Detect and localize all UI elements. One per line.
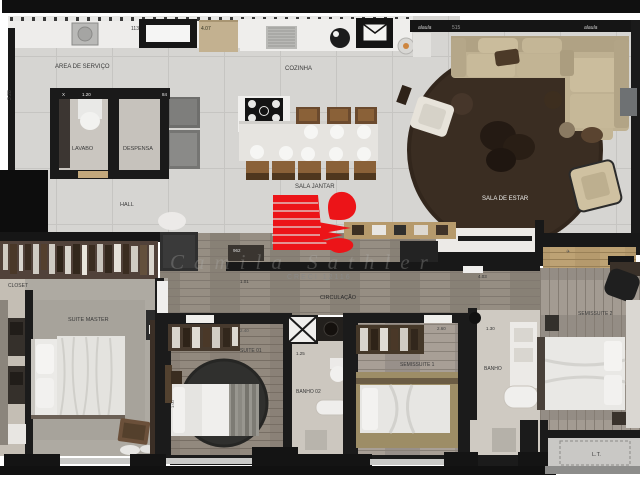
- svg-text:4.07: 4.07: [201, 26, 211, 32]
- svg-text:DESPENSA: DESPENSA: [123, 146, 153, 152]
- svg-text:515: 515: [452, 25, 461, 31]
- svg-text:L.T.: L.T.: [592, 452, 601, 458]
- svg-text:1.25: 1.25: [296, 351, 305, 356]
- svg-text:✈: ✈: [566, 249, 570, 255]
- svg-text:1.01: 1.01: [240, 279, 249, 284]
- svg-text:1.30: 1.30: [486, 326, 495, 331]
- svg-text:BANHO: BANHO: [484, 366, 502, 372]
- svg-text:COZINHA: COZINHA: [285, 66, 312, 72]
- svg-text:2.60: 2.60: [437, 326, 446, 331]
- svg-text:2.40: 2.40: [240, 328, 249, 333]
- svg-text:CIRCULAÇÃO: CIRCULAÇÃO: [320, 294, 357, 301]
- svg-text:X: X: [62, 92, 65, 97]
- svg-text:SEMISSUITE 2: SEMISSUITE 2: [578, 311, 613, 317]
- svg-text:Camila Sathler: Camila Sathler: [170, 250, 438, 274]
- svg-text:alaula: alaula: [584, 25, 598, 31]
- svg-text:CLOSET: CLOSET: [8, 283, 28, 289]
- svg-text:BANHO 02: BANHO 02: [296, 389, 321, 395]
- svg-text:SUITE MASTER: SUITE MASTER: [68, 317, 109, 323]
- svg-text:3.28: 3.28: [7, 90, 13, 100]
- svg-text:alaula: alaula: [418, 25, 432, 31]
- svg-text:84: 84: [162, 92, 168, 97]
- svg-text:SALA DE ESTAR: SALA DE ESTAR: [482, 196, 529, 202]
- svg-text:LAVABO: LAVABO: [72, 146, 94, 152]
- svg-text:SEMISSUITE 1: SEMISSUITE 1: [400, 362, 435, 368]
- svg-text:113: 113: [131, 26, 139, 32]
- svg-text:CRECI 12116: CRECI 12116: [287, 274, 352, 281]
- svg-text:AREA DE SERVIÇO: AREA DE SERVIÇO: [55, 64, 110, 70]
- svg-text:HALL: HALL: [120, 202, 134, 208]
- svg-text:SUITE 01: SUITE 01: [240, 348, 262, 354]
- svg-text:1.20: 1.20: [82, 92, 91, 97]
- svg-text:4.03: 4.03: [478, 274, 487, 279]
- svg-text:SALA JANTAR: SALA JANTAR: [295, 184, 335, 190]
